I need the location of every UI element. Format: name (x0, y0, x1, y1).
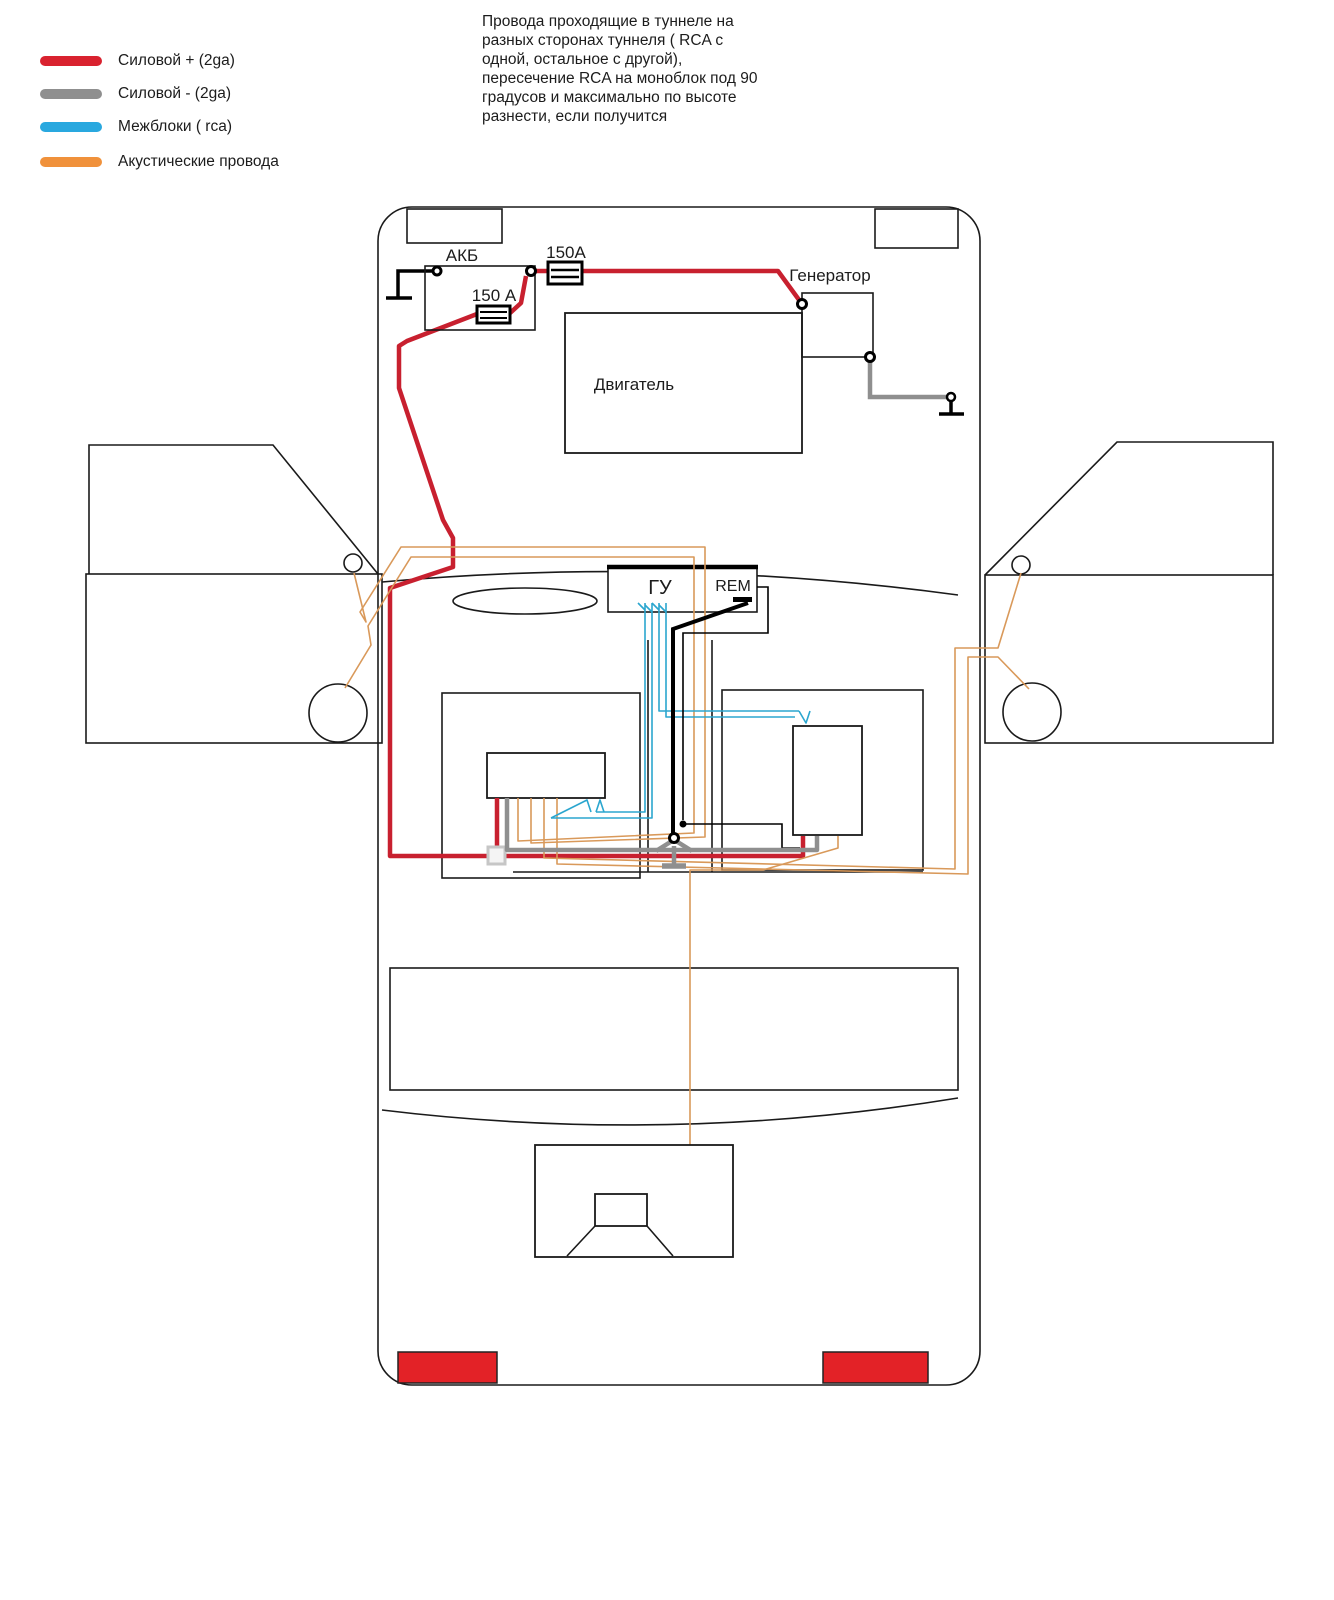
mono-amplifier (793, 726, 862, 835)
acoustic-wires (345, 547, 1029, 1190)
ground-terminal (670, 834, 679, 843)
battery-ground-wire (386, 271, 437, 298)
front-amplifier (487, 753, 605, 798)
rear-seat (390, 968, 958, 1090)
battery-negative-terminal (433, 267, 441, 275)
front-right-block (875, 209, 958, 248)
car-wiring-diagram: АКБ 150А 150 А Генератор Двигатель ГУ RE… (0, 0, 1334, 1600)
inner-fuse (477, 306, 510, 323)
right-tweeter (1012, 556, 1030, 574)
battery-positive-terminal (527, 267, 536, 276)
subwoofer (535, 1145, 733, 1257)
engine-label: Двигатель (594, 375, 674, 394)
left-door-panel (86, 574, 382, 743)
right-tail-light (823, 1352, 928, 1383)
rca-front-amp-arrows (551, 800, 604, 818)
generator-box (802, 293, 873, 357)
left-door-window (89, 445, 378, 574)
battery-label: АКБ (446, 246, 478, 265)
rem-junction-dot (680, 821, 687, 828)
left-tweeter (344, 554, 362, 572)
generator-terminal (798, 300, 807, 309)
rear-window-line (382, 1098, 958, 1125)
power-distribution-block (488, 847, 505, 864)
rem-label: REM (715, 578, 751, 595)
rem-output-pad (733, 597, 752, 602)
right-door (985, 442, 1273, 743)
main-fuse-label: 150А (546, 243, 586, 262)
front-left-block (407, 209, 502, 243)
head-unit-label: ГУ (648, 577, 672, 599)
generator-ground-terminal (947, 393, 955, 401)
rca-mono-amp-arrow (799, 711, 810, 723)
inner-fuse-label: 150 А (472, 286, 517, 305)
dashboard-ellipse (453, 588, 597, 614)
left-door (86, 445, 382, 743)
rem-wire-thick (673, 603, 748, 833)
right-door-panel (985, 575, 1273, 743)
right-door-speaker (1003, 683, 1061, 741)
left-tail-light (398, 1352, 497, 1383)
subwoofer-wire (640, 836, 838, 1190)
generator-label: Генератор (789, 266, 870, 285)
generator-negative-terminal (866, 353, 875, 362)
right-door-window (985, 442, 1273, 575)
main-fuse (548, 262, 582, 284)
left-door-speaker (309, 684, 367, 742)
rca-to-mono-amp (659, 603, 799, 717)
subwoofer-magnet (595, 1194, 647, 1226)
generator-ground-wire (870, 357, 951, 397)
